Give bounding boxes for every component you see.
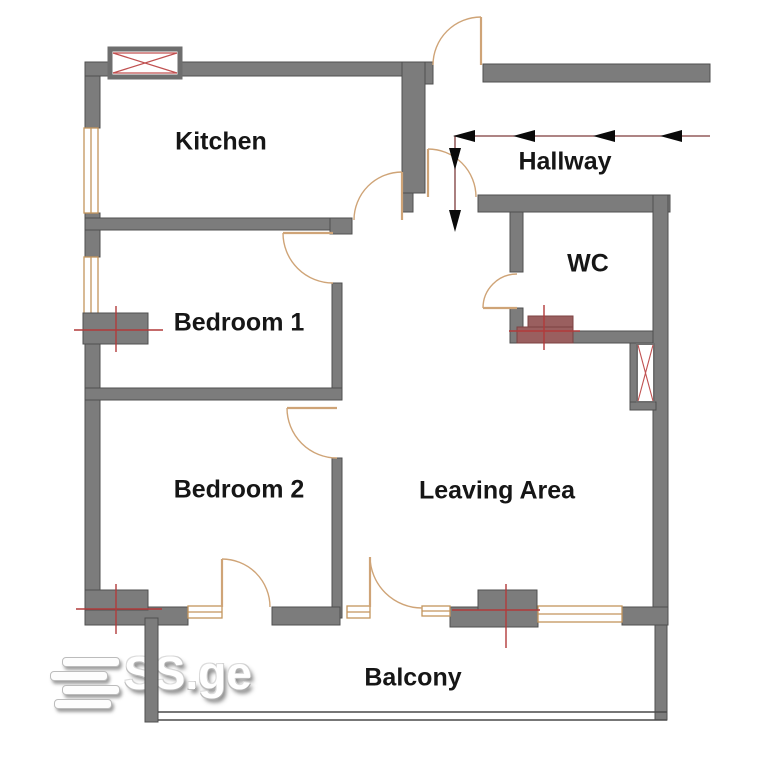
room-label-balcony: Balcony (364, 664, 461, 693)
wall (402, 62, 425, 193)
door-arc (283, 233, 333, 283)
door-arc (222, 559, 270, 607)
wall (483, 64, 710, 82)
walls-layer (85, 62, 710, 722)
wall (85, 388, 342, 400)
wall (630, 402, 656, 410)
floor-plan (0, 0, 770, 765)
arrowhead-icon (513, 130, 535, 142)
arrowhead-icon (449, 148, 461, 170)
entry-direction-arrow (449, 130, 710, 232)
balcony-railing (158, 712, 667, 720)
wall (272, 607, 340, 625)
wall (85, 315, 100, 625)
wall (330, 218, 352, 234)
door-arc (483, 274, 517, 308)
door-arc (370, 557, 422, 608)
wall (332, 283, 342, 398)
room-label-hallway: Hallway (518, 148, 611, 177)
wc-fixture-icon (517, 327, 573, 343)
wall (145, 618, 158, 722)
arrowhead-icon (660, 130, 682, 142)
door-arc (354, 172, 402, 220)
wall (332, 458, 342, 618)
wall (478, 195, 670, 212)
wall (630, 343, 637, 405)
arrowhead-icon (453, 130, 475, 142)
arrowhead-icon (449, 210, 461, 232)
wall (655, 625, 667, 720)
door-arc (433, 17, 481, 65)
wall (85, 218, 352, 230)
room-label-bedroom-1: Bedroom 1 (174, 309, 305, 338)
room-label-leaving-area: Leaving Area (419, 477, 575, 506)
wall (622, 607, 668, 625)
wall (510, 212, 523, 272)
room-label-wc: WC (567, 250, 609, 279)
room-label-bedroom-2: Bedroom 2 (174, 476, 305, 505)
radiator-icon (478, 590, 537, 610)
arrowhead-icon (593, 130, 615, 142)
door-arc (287, 408, 337, 458)
wall (402, 193, 413, 212)
room-label-kitchen: Kitchen (175, 128, 267, 157)
floorplan-page: SS.ge (0, 0, 770, 765)
